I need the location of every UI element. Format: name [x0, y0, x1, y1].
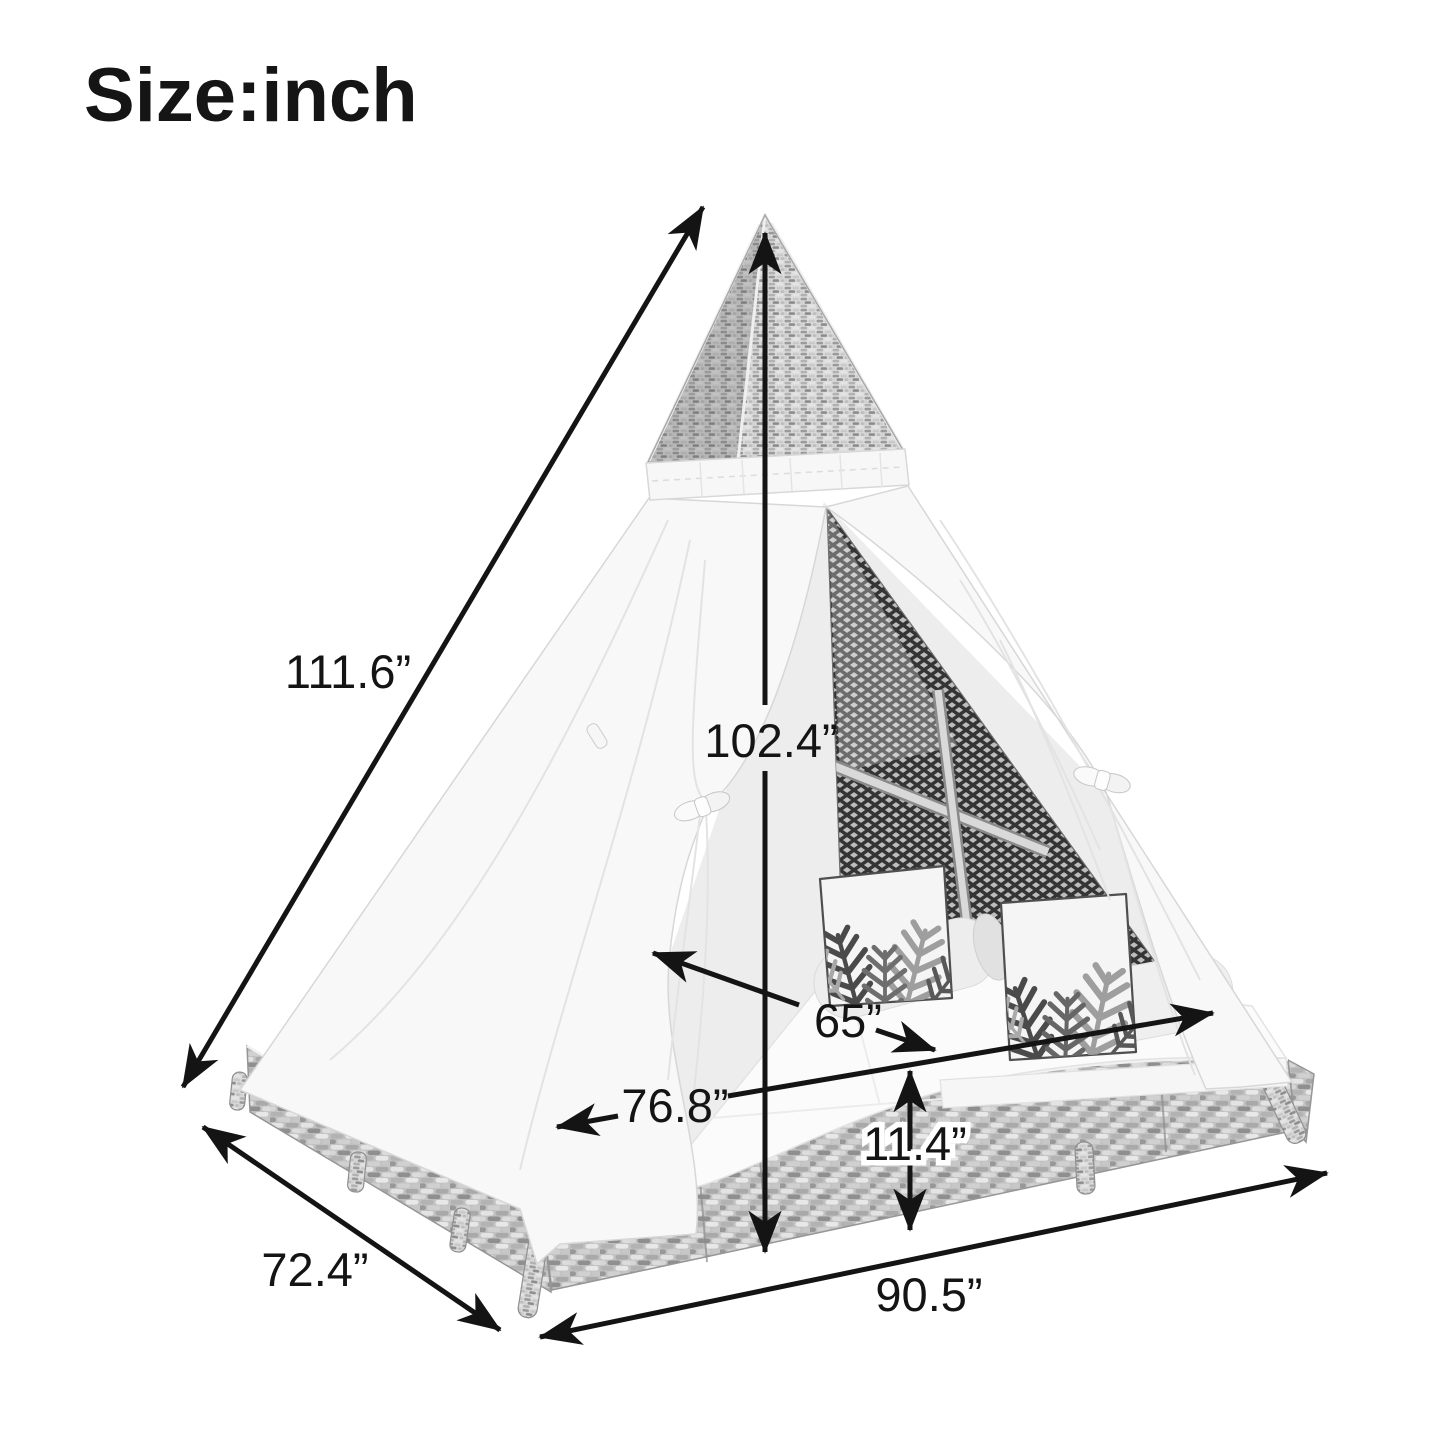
label-bed-width: 65” [814, 994, 882, 1047]
label-front-width: 90.5” [875, 1268, 982, 1321]
label-bed-depth: 76.8” [621, 1079, 728, 1132]
product-dimension-diagram: 111.6” 102.4” 65” 76.8” 11.4” 72.4” 90.5… [0, 0, 1445, 1445]
label-slant-height: 111.6” [285, 645, 411, 698]
label-base-height: 11.4” [863, 1117, 967, 1170]
wicker-cap [648, 206, 903, 469]
label-center-height: 102.4” [704, 714, 837, 767]
page-title: Size:inch [84, 58, 418, 134]
label-side-width: 72.4” [261, 1243, 368, 1296]
teepee-daybed-drawing: 111.6” 102.4” 65” 76.8” 11.4” 72.4” 90.5… [0, 0, 1445, 1445]
